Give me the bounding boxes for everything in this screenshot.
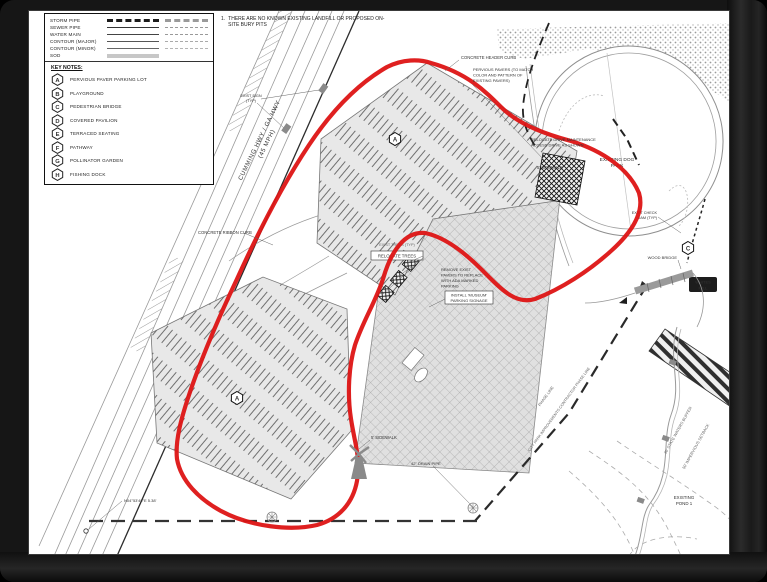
svg-text:A: A (393, 137, 398, 143)
line-sample-proposed (107, 41, 158, 42)
right-road (649, 329, 730, 407)
hexagon-marker-icon: B (51, 87, 64, 100)
key-notes-title: KEY NOTES: (51, 65, 207, 71)
survey-point (84, 529, 88, 533)
key-note-f: F PATHWAY (51, 141, 207, 155)
road-median-hatch (226, 11, 292, 131)
line-sample-proposed (107, 19, 158, 22)
hexagon-marker-icon: E (51, 127, 64, 140)
key-note-d: D COVERED PAVILION (51, 114, 207, 128)
pervious-pavers-label-2: COLOR AND PATTERN OF (473, 73, 523, 78)
key-note-h: H FISHING DOCK (51, 168, 207, 182)
key-marker-c: C (682, 242, 693, 255)
remove-pavers-label-4: PARKING (441, 284, 459, 289)
concrete-header-curb-label: CONCRETE HEADER CURB (461, 55, 516, 60)
hexagon-marker-icon: G (51, 154, 64, 167)
svg-text:H: H (55, 173, 59, 179)
museum-label-2: PARKING SIGNAGE (450, 298, 487, 303)
key-note-g: G POLLINATOR GARDEN (51, 154, 207, 168)
svg-text:D: D (55, 119, 59, 125)
check-dam-label-1: EXIST CHECK (632, 211, 658, 215)
svg-text:A: A (235, 396, 240, 402)
exist-sign-label-2: (TYP) (246, 99, 257, 103)
whites-mill-label-2: MILL (699, 286, 709, 291)
site-plan-sheet: CUMMING HWY / GA HWY (45 MPH) EXISTING D… (28, 10, 730, 555)
line-sample-proposed (107, 48, 158, 49)
note-text: THERE ARE NO KNOWN EXISTING LANDFILL OR … (228, 16, 388, 28)
phase-line-label-1: PHASE LINE (537, 385, 555, 407)
drain-pipe-label: 42" DRAIN PIPE (411, 461, 441, 466)
key-note-b: B PLAYGROUND (51, 87, 207, 101)
bridge-icon (635, 273, 693, 291)
relocate-drive-label-1: RELOCATE DRIVE MAINTENANCE (531, 137, 596, 142)
hexagon-marker-icon: C (51, 100, 64, 113)
sod-sample (107, 54, 158, 58)
pond-label-1: EXISTING (674, 495, 695, 500)
exist-sign-label-1: EXIST SIGN (240, 94, 261, 98)
key-notes-section: KEY NOTES: A PERVIOUS PAVER PARKING LOT … (45, 62, 213, 181)
pond-label-2: POND 1 (676, 501, 693, 506)
key-marker-a-lower: A (231, 392, 242, 405)
whites-mill-sign: WHITES MILL (689, 277, 717, 292)
relocate-trees-label: RELOCATE TREES (378, 254, 416, 259)
line-sample-existing (165, 19, 208, 22)
line-sample-existing (165, 27, 208, 28)
whites-mill-label-1: WHITES (695, 280, 711, 285)
concrete-ribbon-curb-label: CONCRETE RIBBON CURB (198, 230, 252, 235)
museum-label-1: INSTALL 'MUSEUM' (451, 293, 487, 298)
svg-text:F: F (56, 146, 60, 152)
line-sample-existing (165, 48, 208, 49)
svg-text:B: B (55, 92, 59, 98)
svg-text:G: G (55, 159, 60, 165)
legend-row-storm-pipe: STORM PIPE (50, 17, 208, 24)
line-sample-existing (165, 41, 208, 42)
slide-background: CUMMING HWY / GA HWY (45 MPH) EXISTING D… (0, 0, 767, 582)
arrow-icon (619, 297, 627, 304)
relocate-drive-label-2: ACCESS DRIVE AS SHOWN (531, 143, 584, 148)
key-marker-a-upper: A (389, 133, 400, 146)
general-note: 1. THERE ARE NO KNOWN EXISTING LANDFILL … (221, 16, 399, 28)
legend-row-water-main: WATER MAIN (50, 31, 208, 38)
lower-parking-lot (151, 277, 351, 499)
pervious-pavers-label-1: PERVIOUS PAVERS (TO MATCH (473, 67, 533, 72)
paver-block (535, 153, 585, 205)
note-number: 1. (221, 16, 225, 28)
key-note-e: E TERRACED SEATING (51, 127, 207, 141)
line-sample-proposed (107, 34, 158, 35)
check-dam-label-2: DAM (TYP) (638, 216, 658, 220)
pervious-pavers-label-3: EXISTING PAVERS) (473, 78, 510, 83)
impervious-setback-label: 50' IMPERVIOUS SETBACK (681, 422, 710, 469)
key-note-c: C PEDESTRIAN BRIDGE (51, 100, 207, 114)
legend-row-sewer-pipe: SEWER PIPE (50, 24, 208, 31)
line-sample-existing (165, 34, 208, 35)
hexagon-marker-icon: A (51, 73, 64, 86)
sidewalk-bottom-label: 5' SIDEWALK (371, 435, 397, 440)
legend-row-contour-minor: CONTOUR (MINOR) (50, 45, 208, 52)
remove-pavers-label-3: WITH ADA MARKED (441, 278, 478, 283)
ribbon-curb-callout: CONCRETE RIBBON CURB (198, 230, 273, 245)
legend-panel: STORM PIPE SEWER PIPE WATER MAIN CONTOUR… (44, 13, 214, 185)
line-sample-proposed (107, 27, 158, 28)
svg-text:C: C (686, 246, 691, 252)
wood-bridge-label: WOOD BRIDGE (648, 255, 678, 260)
remove-pavers-label-1: REMOVE EXIST (441, 267, 472, 272)
tree-icon (468, 503, 478, 513)
bearing-label: N04°53'49"E 5.38' (124, 498, 157, 503)
legend-row-sod: SOD (50, 52, 208, 59)
key-note-a: A PERVIOUS PAVER PARKING LOT (51, 73, 207, 87)
hexagon-marker-icon: H (51, 168, 64, 181)
legend-row-contour-major: CONTOUR (MAJOR) (50, 38, 208, 45)
hexagon-marker-icon: D (51, 114, 64, 127)
contour-lines (569, 441, 730, 555)
drop-shadow-bottom (0, 552, 767, 582)
legend-linework: STORM PIPE SEWER PIPE WATER MAIN CONTOUR… (45, 16, 213, 62)
svg-text:E: E (56, 132, 60, 138)
sidewalk-label: 5' SIDEWALK (537, 165, 563, 170)
hexagon-marker-icon: F (51, 141, 64, 154)
remove-pavers-label-2: PAVERS TO REPLACE (441, 273, 483, 278)
tree-icon (267, 512, 277, 522)
drop-shadow-right (727, 0, 767, 582)
